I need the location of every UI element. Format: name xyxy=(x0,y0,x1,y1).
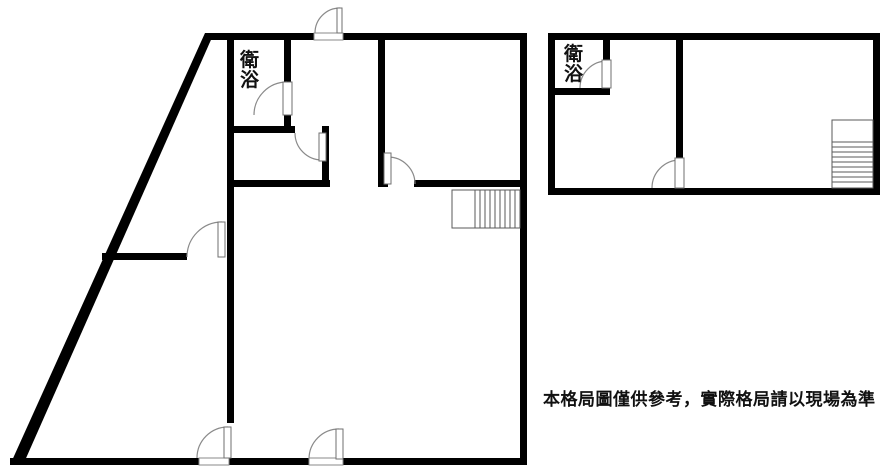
floor-plan-page: 衛浴 衛浴 本格局圖僅供參考，實際格局請以現場為準 xyxy=(0,0,889,473)
bottom-door-left-swing-arc xyxy=(197,427,228,458)
wall xyxy=(284,40,291,82)
slanted-exterior-wall xyxy=(10,33,214,465)
wall xyxy=(548,40,555,188)
wall xyxy=(343,33,527,40)
staircase xyxy=(452,190,520,228)
bottom-door-right-leaf xyxy=(336,429,343,459)
wall xyxy=(603,40,610,60)
wall xyxy=(227,180,330,187)
wall xyxy=(227,126,295,133)
left-unit-plan xyxy=(10,8,527,465)
disclaimer-text: 本格局圖僅供參考，實際格局請以現場為準 xyxy=(543,385,888,410)
stair-outline xyxy=(832,120,873,188)
wall xyxy=(676,40,683,158)
wall xyxy=(228,458,310,465)
wedge-room-door-leaf xyxy=(218,222,225,257)
closet-door-swing-arc xyxy=(295,133,322,160)
right-unit-plan xyxy=(548,33,880,195)
wall xyxy=(520,33,527,465)
wall xyxy=(548,33,880,40)
entry-door-top-sill xyxy=(314,33,343,40)
wall xyxy=(10,458,200,465)
bottom-door-left-leaf xyxy=(224,427,231,458)
bathroom-door-leaf xyxy=(602,60,611,88)
bathroom-label-right-unit: 衛浴 xyxy=(564,45,588,85)
wall xyxy=(555,88,610,95)
wedge-room-door-swing-arc xyxy=(187,222,222,257)
closet-door-leaf xyxy=(319,133,326,161)
bathroom-label-left-unit: 衛浴 xyxy=(240,51,264,91)
wall xyxy=(342,458,527,465)
wall xyxy=(414,180,527,187)
room-door-leaf xyxy=(675,158,684,188)
upper-right-room-door-leaf xyxy=(384,153,391,184)
wall xyxy=(205,33,314,40)
bathroom-door-leaf xyxy=(283,82,292,115)
wall xyxy=(548,188,880,195)
wall xyxy=(227,40,234,423)
wall xyxy=(873,40,880,195)
entry-door-top-swing-arc xyxy=(315,8,340,33)
bottom-door-right-swing-arc xyxy=(309,429,339,459)
bottom-door-left-sill xyxy=(199,458,229,465)
staircase xyxy=(832,120,873,188)
upper-right-room-door-swing-arc xyxy=(388,157,415,184)
wall xyxy=(284,115,291,127)
entry-door-top-leaf xyxy=(337,8,342,33)
